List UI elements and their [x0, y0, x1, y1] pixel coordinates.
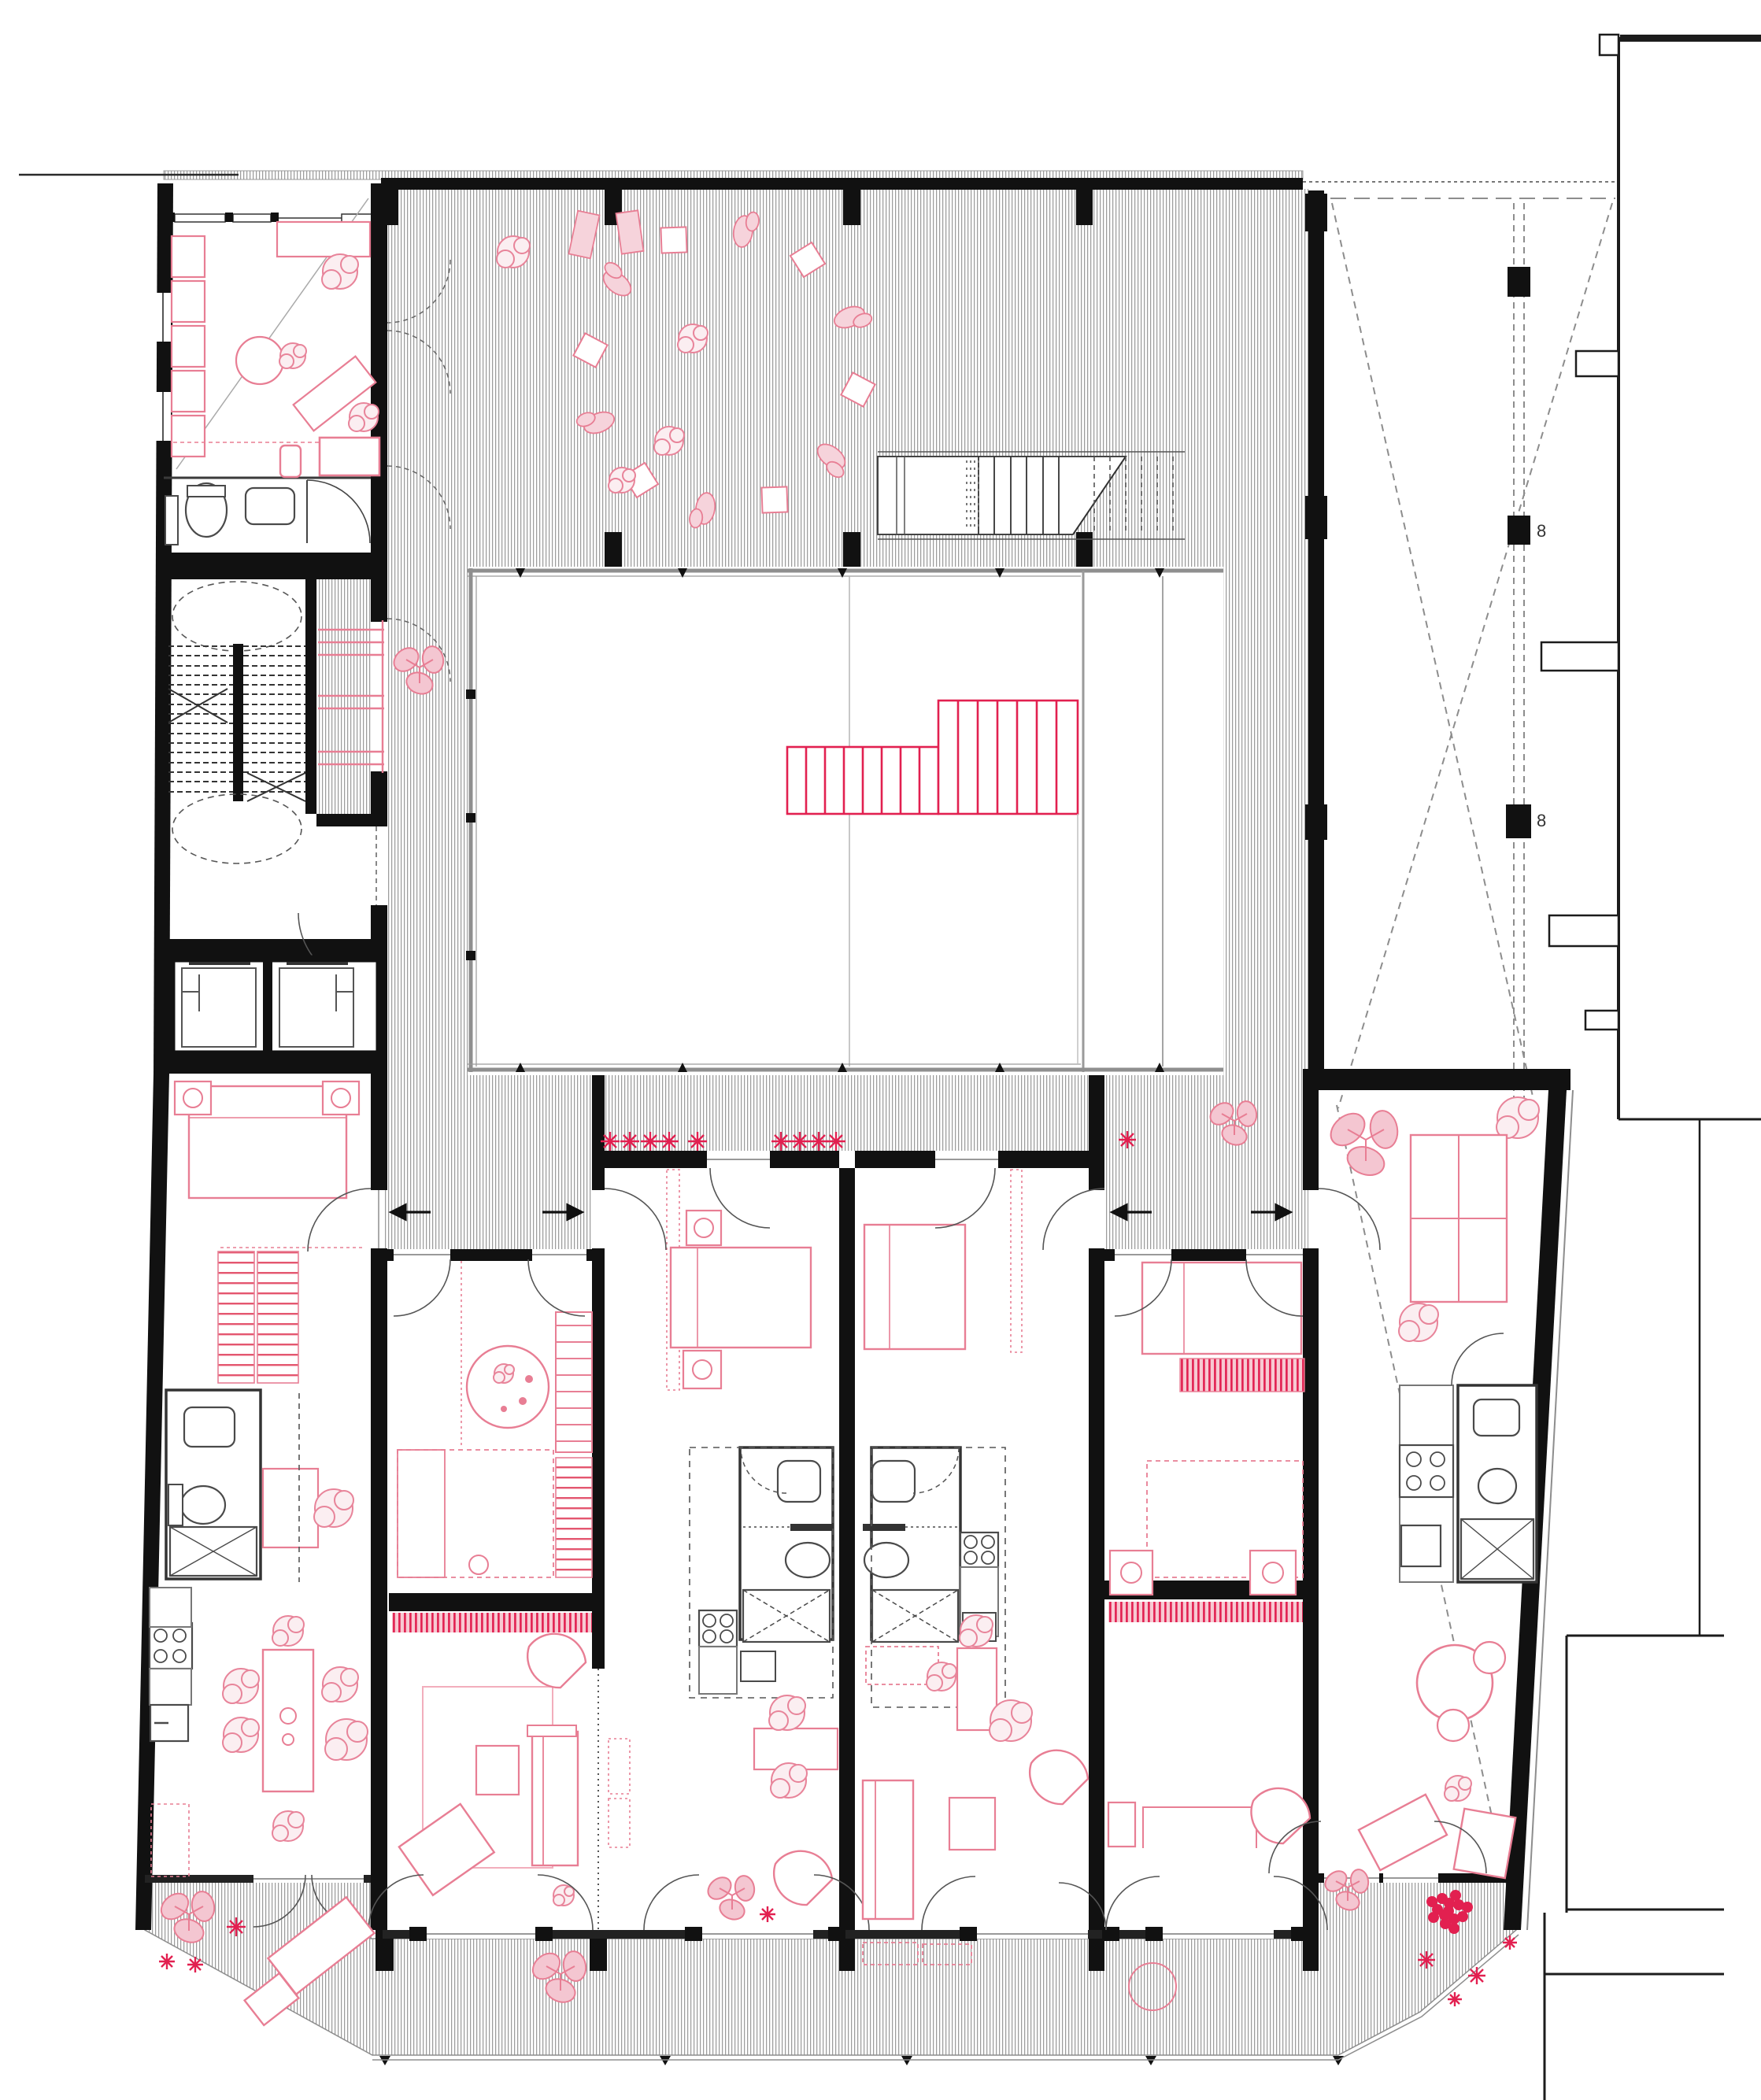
svg-text:8: 8 — [1537, 521, 1546, 541]
svg-text:8: 8 — [1537, 811, 1546, 830]
